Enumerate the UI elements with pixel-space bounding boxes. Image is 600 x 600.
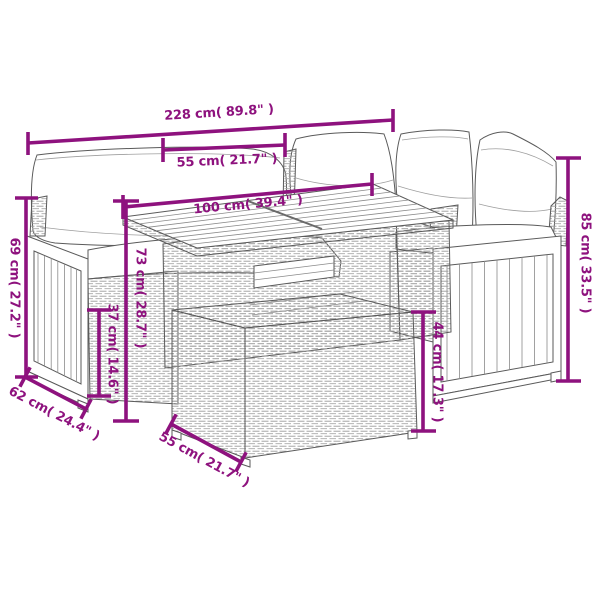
dimension-lines bbox=[0, 0, 600, 600]
dimension-diagram: 228 cm( 89.8" ) 55 cm( 21.7" ) 100 cm( 3… bbox=[0, 0, 600, 600]
dim-total-height-label: 85 cm( 33.5" ) bbox=[579, 213, 592, 314]
dim-side-table-height-label: 44 cm( 17.3" ) bbox=[431, 322, 444, 423]
dim-table-height-label: 73 cm( 28.7" ) bbox=[134, 248, 147, 349]
dim-table-top-width-label: 55 cm( 21.7" ) bbox=[176, 152, 277, 169]
dim-seat-base-height-label: 37 cm( 14.6" ) bbox=[106, 304, 119, 405]
dim-left-arm-height-label: 69 cm( 27.2" ) bbox=[8, 238, 21, 339]
